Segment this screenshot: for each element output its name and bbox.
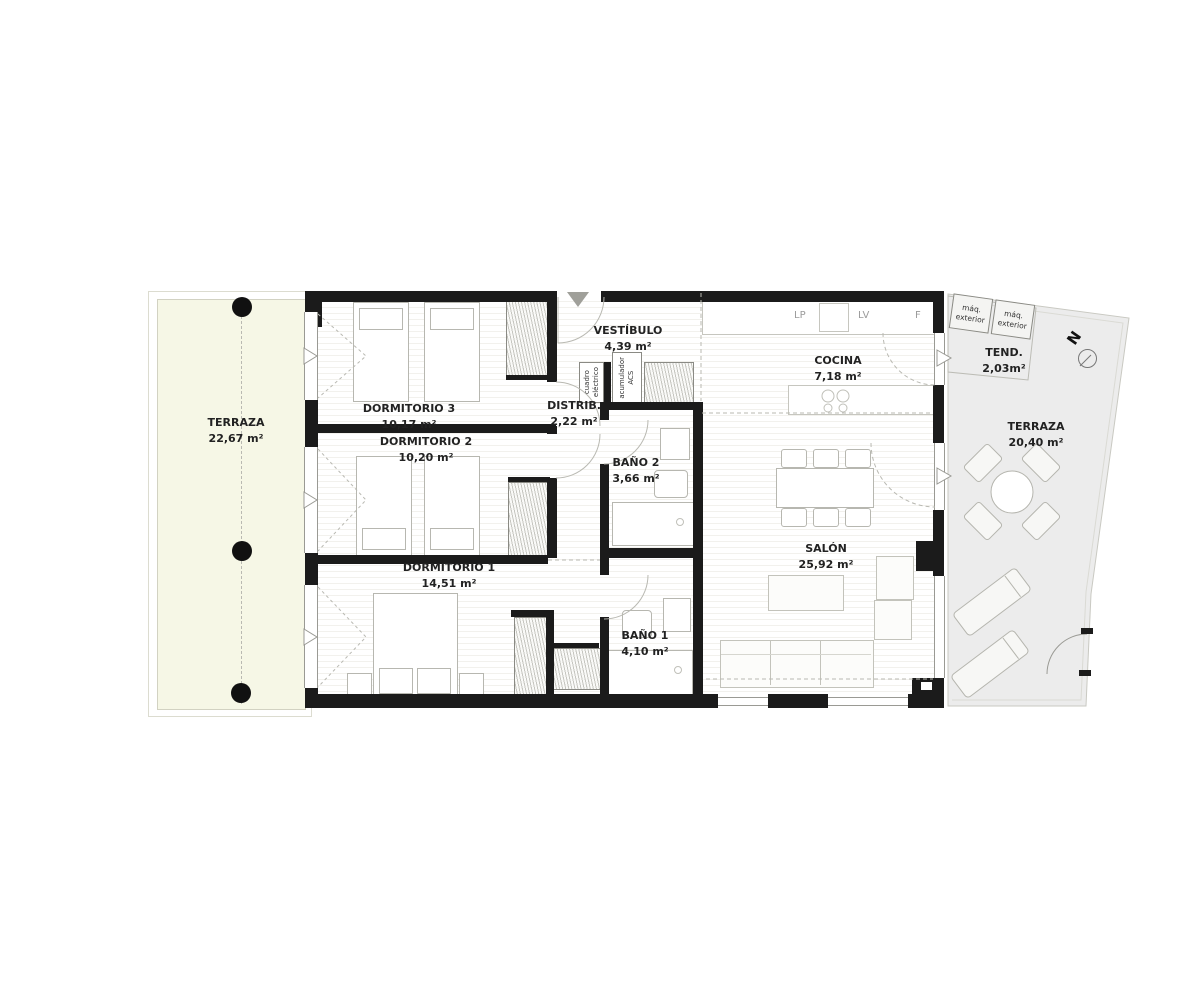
wall-top-left — [305, 291, 557, 302]
fridge-label: F — [915, 310, 921, 321]
wall-corridor-banos — [600, 410, 609, 420]
pillar — [916, 541, 944, 571]
maq-exterior-label-1: máq. exterior — [955, 302, 987, 325]
terrace-table — [991, 471, 1033, 513]
bathroom-sink — [663, 598, 691, 632]
wall-bedrooms-corridor — [547, 291, 557, 382]
window-salon-bottom — [718, 697, 768, 706]
wardrobe-cap — [511, 610, 551, 617]
dishwasher-label: LV — [858, 310, 869, 321]
window-dormitorio2 — [304, 447, 318, 553]
coffee-table — [768, 575, 844, 611]
acumulador-acs-box: acumulador ACS — [612, 352, 642, 403]
washer-label: LP — [794, 310, 806, 321]
maq-exterior-box-2: máq. exterior — [991, 299, 1035, 339]
sofa-cushion-line — [770, 641, 771, 685]
terrace-chair — [963, 443, 1003, 483]
wall-banos-salon — [693, 402, 703, 708]
wall-bottom-left — [305, 694, 700, 708]
chair — [781, 449, 807, 468]
lounger — [952, 567, 1031, 636]
maq-exterior-box-1: máq. exterior — [949, 293, 993, 333]
wardrobe-cap — [553, 643, 599, 648]
room-label-bano2: BAÑO 2 3,66 m² — [612, 455, 659, 487]
chair — [813, 508, 839, 527]
bathroom-sink — [660, 428, 690, 460]
wardrobe-dormitorio2 — [508, 482, 550, 556]
wardrobe-cap — [506, 375, 550, 380]
nightstand — [347, 673, 372, 695]
wall-corridor-banos — [600, 558, 609, 575]
kitchen-sink — [819, 303, 849, 332]
terrace-left-axis-line — [241, 301, 242, 704]
room-label-cocina: COCINA 7,18 m² — [814, 353, 861, 385]
maq-exterior-label-2: máq. exterior — [997, 308, 1029, 331]
wall-right-seg — [933, 385, 944, 443]
pillow — [362, 528, 406, 550]
wall-utilities-bottom — [600, 402, 693, 410]
wardrobe-corridor — [553, 648, 601, 690]
wall-bottom-seg — [768, 694, 828, 708]
terrace-door-jamb — [1079, 670, 1091, 676]
wall-closet-divider — [546, 610, 554, 694]
window-salon-right — [934, 576, 945, 678]
window-dormitorio1 — [304, 585, 318, 688]
nightstand — [459, 673, 484, 695]
door-gap-salon-terrace — [934, 443, 945, 510]
room-label-dormitorio1: DORMITORIO 1 14,51 m² — [403, 560, 495, 592]
terrace-right-floor — [948, 294, 1129, 706]
terrace-door-jamb — [1081, 628, 1093, 634]
sofa-cushion-line — [820, 641, 821, 685]
closet-vestibulo — [644, 362, 694, 404]
terrace-chair — [1021, 501, 1061, 541]
pillow — [417, 668, 451, 694]
north-circle — [1078, 349, 1097, 368]
sofa-back-line — [721, 654, 871, 655]
wall-left-seg — [305, 291, 318, 312]
pillow — [379, 668, 413, 694]
wardrobe-dormitorio3 — [506, 301, 550, 377]
wall-corridor-banos — [600, 617, 609, 697]
column-dot — [231, 683, 251, 703]
room-label-vestibulo: VESTÍBULO 4,39 m² — [594, 323, 663, 355]
floor-plan: cuadro eléctrico acumulador ACS LP LV F — [0, 0, 1195, 1001]
terrace-left-floor — [157, 299, 306, 710]
window-dormitorio3 — [304, 312, 318, 400]
utility-divider — [604, 362, 611, 402]
acumulador-acs-label: acumulador ACS — [618, 357, 636, 399]
pillow — [430, 528, 474, 550]
wall-right-seg — [933, 678, 944, 708]
chair — [845, 508, 871, 527]
room-label-salon: SALÓN 25,92 m² — [799, 541, 854, 573]
wall-bedrooms-corridor — [547, 478, 557, 558]
wall-bano2-bano1 — [600, 548, 693, 558]
wall-top-right — [601, 291, 943, 302]
kitchen-counter-bottom — [788, 385, 935, 415]
room-label-dormitorio2: DORMITORIO 2 10,20 m² — [380, 434, 472, 466]
pillow — [430, 308, 474, 330]
north-arrow-icon: N — [1063, 328, 1085, 349]
armchair — [874, 600, 912, 640]
wall-corridor-banos — [600, 464, 609, 548]
wardrobe-dormitorio1 — [514, 617, 549, 696]
window-salon-bottom — [828, 697, 908, 706]
chair — [813, 449, 839, 468]
room-label-bano1: BAÑO 1 4,10 m² — [621, 628, 668, 660]
tv-unit — [876, 556, 914, 600]
bathtub — [612, 502, 694, 546]
pillow — [359, 308, 403, 330]
column-dot — [232, 297, 252, 317]
column-dot — [232, 541, 252, 561]
corner-block-notch — [921, 682, 932, 690]
chair — [845, 449, 871, 468]
wardrobe-cap — [508, 477, 550, 482]
sofa — [720, 640, 874, 688]
room-label-distribuidor: DISTRIB. 2,22 m² — [547, 398, 601, 430]
room-label-terraza-right: TERRAZA 20,40 m² — [1008, 419, 1065, 451]
room-label-dormitorio3: DORMITORIO 3 10,17 m² — [363, 401, 455, 433]
terrace-door-arc — [1047, 634, 1087, 674]
cuadro-electrico-box: cuadro eléctrico — [579, 362, 604, 403]
north-letter: N — [1063, 328, 1085, 349]
chair — [781, 508, 807, 527]
door-gap-cocina-terrace — [934, 333, 945, 385]
terrace-right-inner-line — [952, 300, 1123, 700]
cuadro-electrico-label: cuadro eléctrico — [583, 367, 601, 397]
lounger — [950, 629, 1029, 698]
terrace-chair — [963, 501, 1003, 541]
room-label-tendedero: TEND. 2,03m² — [982, 345, 1025, 377]
dining-table — [776, 468, 874, 508]
room-label-terraza-left: TERRAZA 22,67 m² — [208, 415, 265, 447]
wall-left-seg — [305, 688, 318, 708]
wall-right-seg — [933, 291, 944, 333]
